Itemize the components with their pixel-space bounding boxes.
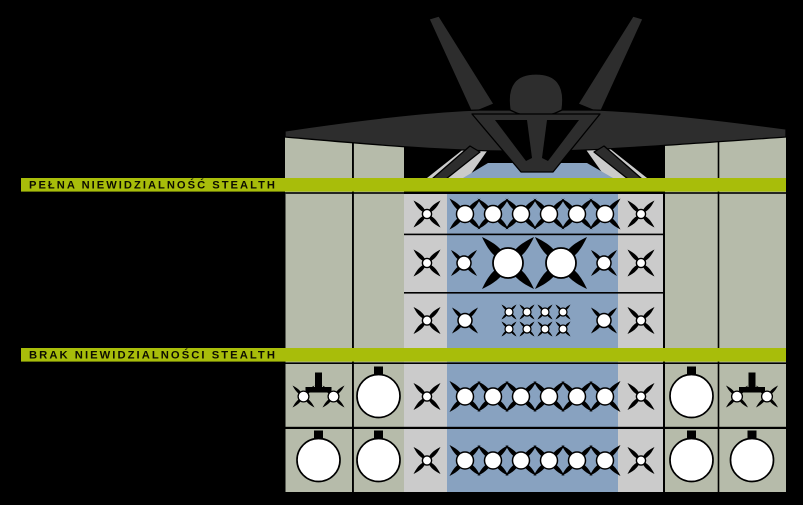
column-bay-side-right	[618, 194, 663, 492]
diagram-canvas: PEŁNA NIEWIDZIALNOŚĆ STEALTH BRAK NIEWID…	[0, 0, 803, 505]
loadout-diagram-svg: PEŁNA NIEWIDZIALNOŚĆ STEALTH BRAK NIEWID…	[0, 0, 803, 505]
canopy	[509, 74, 563, 117]
stealth-band-label: PEŁNA NIEWIDZIALNOŚĆ STEALTH	[29, 179, 277, 192]
tail-right-fin	[578, 16, 643, 113]
column-bay-side-left	[404, 194, 447, 492]
tail-left-fin	[429, 16, 494, 113]
line-under-band-2	[285, 362, 786, 364]
row-divider-2	[404, 292, 663, 294]
no-stealth-band-label: BRAK NIEWIDZIALNOŚCI STEALTH	[29, 349, 277, 362]
row-divider-1	[404, 234, 663, 236]
row-divider-3	[285, 427, 786, 429]
line-under-band-1	[285, 192, 786, 194]
table-left-edge	[284, 194, 286, 492]
